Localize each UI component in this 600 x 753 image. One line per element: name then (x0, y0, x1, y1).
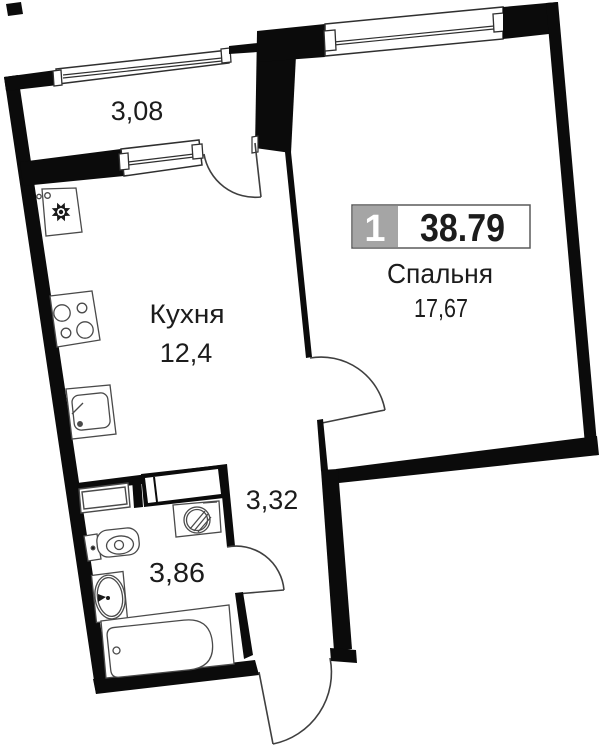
svg-text:3,32: 3,32 (246, 485, 299, 515)
svg-text:12,4: 12,4 (160, 338, 213, 368)
svg-text:38.79: 38.79 (420, 207, 505, 250)
svg-text:Спальня: Спальня (387, 258, 493, 289)
svg-text:17,67: 17,67 (414, 293, 468, 323)
svg-text:3,86: 3,86 (149, 557, 205, 588)
svg-text:1: 1 (364, 208, 385, 250)
svg-text:3,08: 3,08 (111, 96, 164, 126)
svg-text:Кухня: Кухня (150, 299, 225, 329)
